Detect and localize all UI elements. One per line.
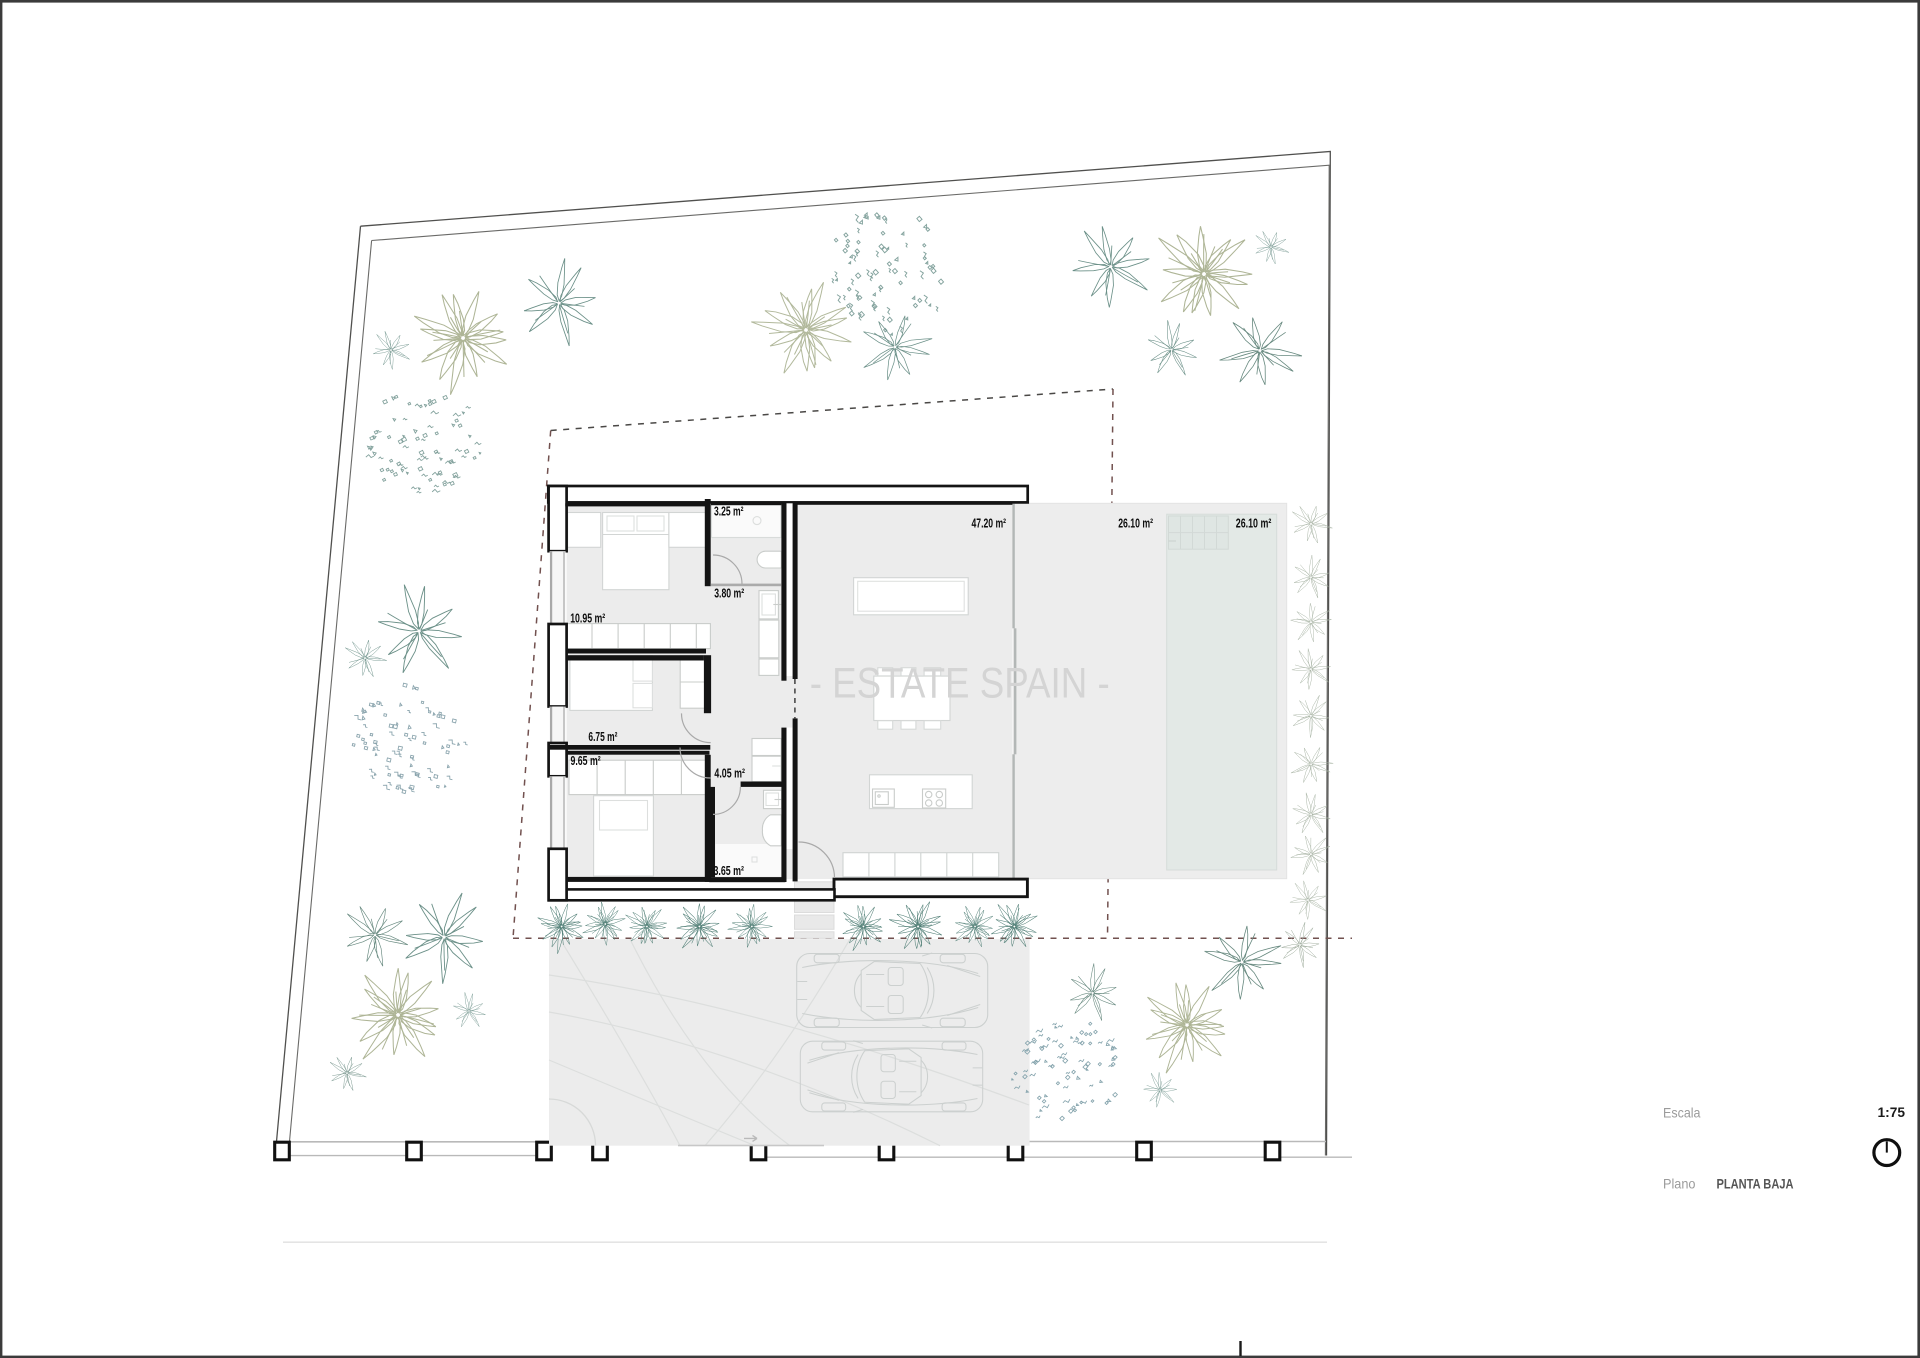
svg-text:6.75 m²: 6.75 m² bbox=[588, 730, 617, 744]
svg-text:3.80 m²: 3.80 m² bbox=[714, 587, 744, 601]
svg-text:- ESTATE SPAIN -: - ESTATE SPAIN - bbox=[810, 660, 1110, 707]
svg-text:Escala: Escala bbox=[1663, 1106, 1701, 1121]
svg-text:4.05 m²: 4.05 m² bbox=[714, 767, 745, 781]
svg-text:10.95 m²: 10.95 m² bbox=[570, 612, 605, 626]
svg-text:9.65 m²: 9.65 m² bbox=[571, 754, 601, 768]
svg-text:1:75: 1:75 bbox=[1878, 1105, 1906, 1120]
svg-text:47.20 m²: 47.20 m² bbox=[972, 516, 1007, 530]
svg-text:26.10 m²: 26.10 m² bbox=[1118, 516, 1153, 530]
svg-text:Plano: Plano bbox=[1663, 1176, 1696, 1191]
svg-text:26.10 m²: 26.10 m² bbox=[1236, 516, 1272, 530]
svg-text:PLANTA BAJA: PLANTA BAJA bbox=[1717, 1177, 1794, 1192]
svg-text:3.25 m²: 3.25 m² bbox=[714, 505, 744, 519]
svg-text:3.65 m²: 3.65 m² bbox=[714, 864, 745, 878]
